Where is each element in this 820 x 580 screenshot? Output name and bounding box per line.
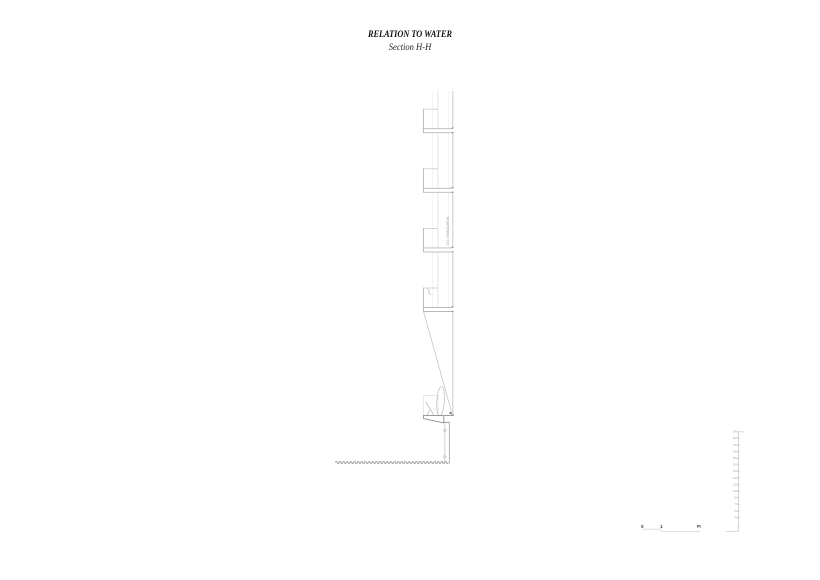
svg-text:BOARDWALK LVL: BOARDWALK LVL [446,217,451,246]
svg-text:+ m: + m [739,431,743,434]
svg-text:RELATION TO WATER: RELATION TO WATER [367,29,452,40]
svg-text:Section H-H: Section H-H [389,43,433,53]
svg-text:m: m [697,524,701,529]
